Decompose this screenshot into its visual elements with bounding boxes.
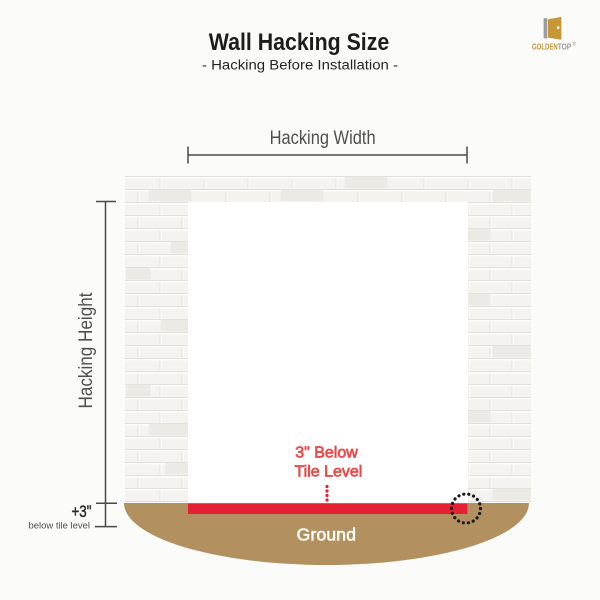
svg-text:Wall Hacking Size: Wall Hacking Size: [209, 29, 390, 56]
svg-text:+3": +3": [72, 503, 92, 521]
svg-text:- Hacking Before Installation: - Hacking Before Installation -: [202, 58, 398, 73]
svg-text:Ground: Ground: [297, 525, 356, 545]
svg-text:Hacking Width: Hacking Width: [270, 128, 376, 149]
svg-text:below tile level: below tile level: [29, 521, 91, 531]
svg-text:Tile Level: Tile Level: [294, 464, 362, 481]
svg-text:3" Below: 3" Below: [295, 445, 358, 462]
svg-text:Hacking Height: Hacking Height: [76, 292, 97, 409]
svg-text:®: ®: [573, 40, 577, 47]
svg-text:TOP: TOP: [558, 42, 572, 52]
svg-text:GOLDEN: GOLDEN: [532, 42, 558, 52]
